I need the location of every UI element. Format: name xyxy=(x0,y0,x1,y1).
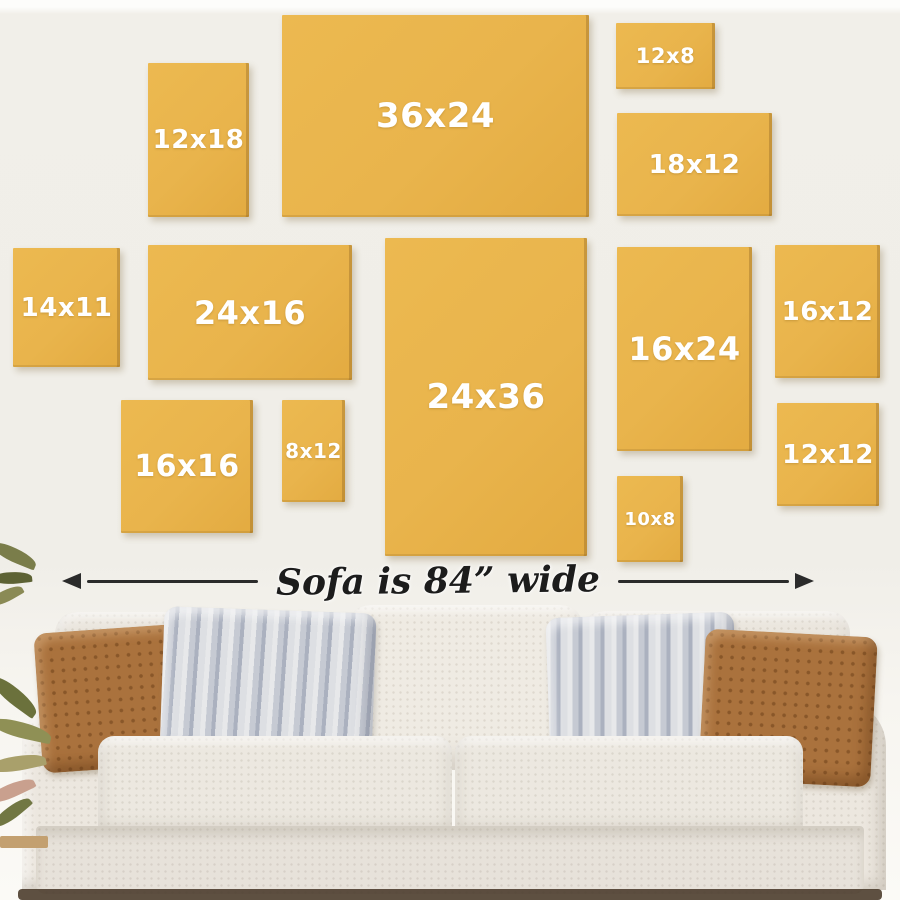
sofa-base xyxy=(36,826,864,894)
frame-size-label: 12x8 xyxy=(636,44,695,68)
frame-24x16: 24x16 xyxy=(148,245,352,380)
leaf-icon xyxy=(0,582,25,610)
frame-size-label: 16x24 xyxy=(628,330,740,368)
frame-12x18: 12x18 xyxy=(148,63,249,217)
frame-12x12: 12x12 xyxy=(777,403,879,506)
leaf-icon xyxy=(0,673,41,719)
sofa-seat-cushion-left xyxy=(98,736,452,840)
frame-16x16: 16x16 xyxy=(121,400,253,533)
frame-size-label: 12x18 xyxy=(153,125,245,155)
floor-shadow xyxy=(18,889,882,900)
frame-18x12: 18x12 xyxy=(617,113,772,216)
frame-12x8: 12x8 xyxy=(616,23,715,89)
frame-size-label: 16x12 xyxy=(782,297,874,327)
size-guide-image: 12x18 36x24 12x8 18x12 14x11 24x16 24x36… xyxy=(0,0,900,900)
arrow-right-icon xyxy=(795,573,814,589)
measure-line xyxy=(87,580,258,583)
frame-10x8: 10x8 xyxy=(617,476,683,562)
frame-size-label: 36x24 xyxy=(376,96,495,136)
leaf-icon xyxy=(0,540,39,571)
arrow-left-icon xyxy=(62,573,81,589)
frame-16x12: 16x12 xyxy=(775,245,880,378)
frame-14x11: 14x11 xyxy=(13,248,120,367)
frame-24x36: 24x36 xyxy=(385,238,587,556)
plant-pot xyxy=(0,836,48,848)
sofa-width-measure: Sofa is 84” wide xyxy=(62,558,814,604)
leaf-icon xyxy=(0,570,33,586)
frame-size-label: 24x16 xyxy=(194,294,306,332)
frame-16x24: 16x24 xyxy=(617,247,752,451)
frame-size-label: 18x12 xyxy=(649,150,741,180)
frame-8x12: 8x12 xyxy=(282,400,345,502)
frame-size-label: 14x11 xyxy=(21,293,113,323)
sofa-seat-cushion-right xyxy=(455,736,803,840)
frame-36x24: 36x24 xyxy=(282,15,589,217)
sofa-width-label: Sofa is 84” wide xyxy=(264,561,612,601)
frame-size-label: 10x8 xyxy=(624,509,675,530)
frame-size-label: 24x36 xyxy=(426,377,545,417)
frame-size-label: 16x16 xyxy=(134,449,239,484)
measure-line xyxy=(618,580,789,583)
frame-size-label: 12x12 xyxy=(782,440,874,470)
frame-size-label: 8x12 xyxy=(285,439,342,463)
